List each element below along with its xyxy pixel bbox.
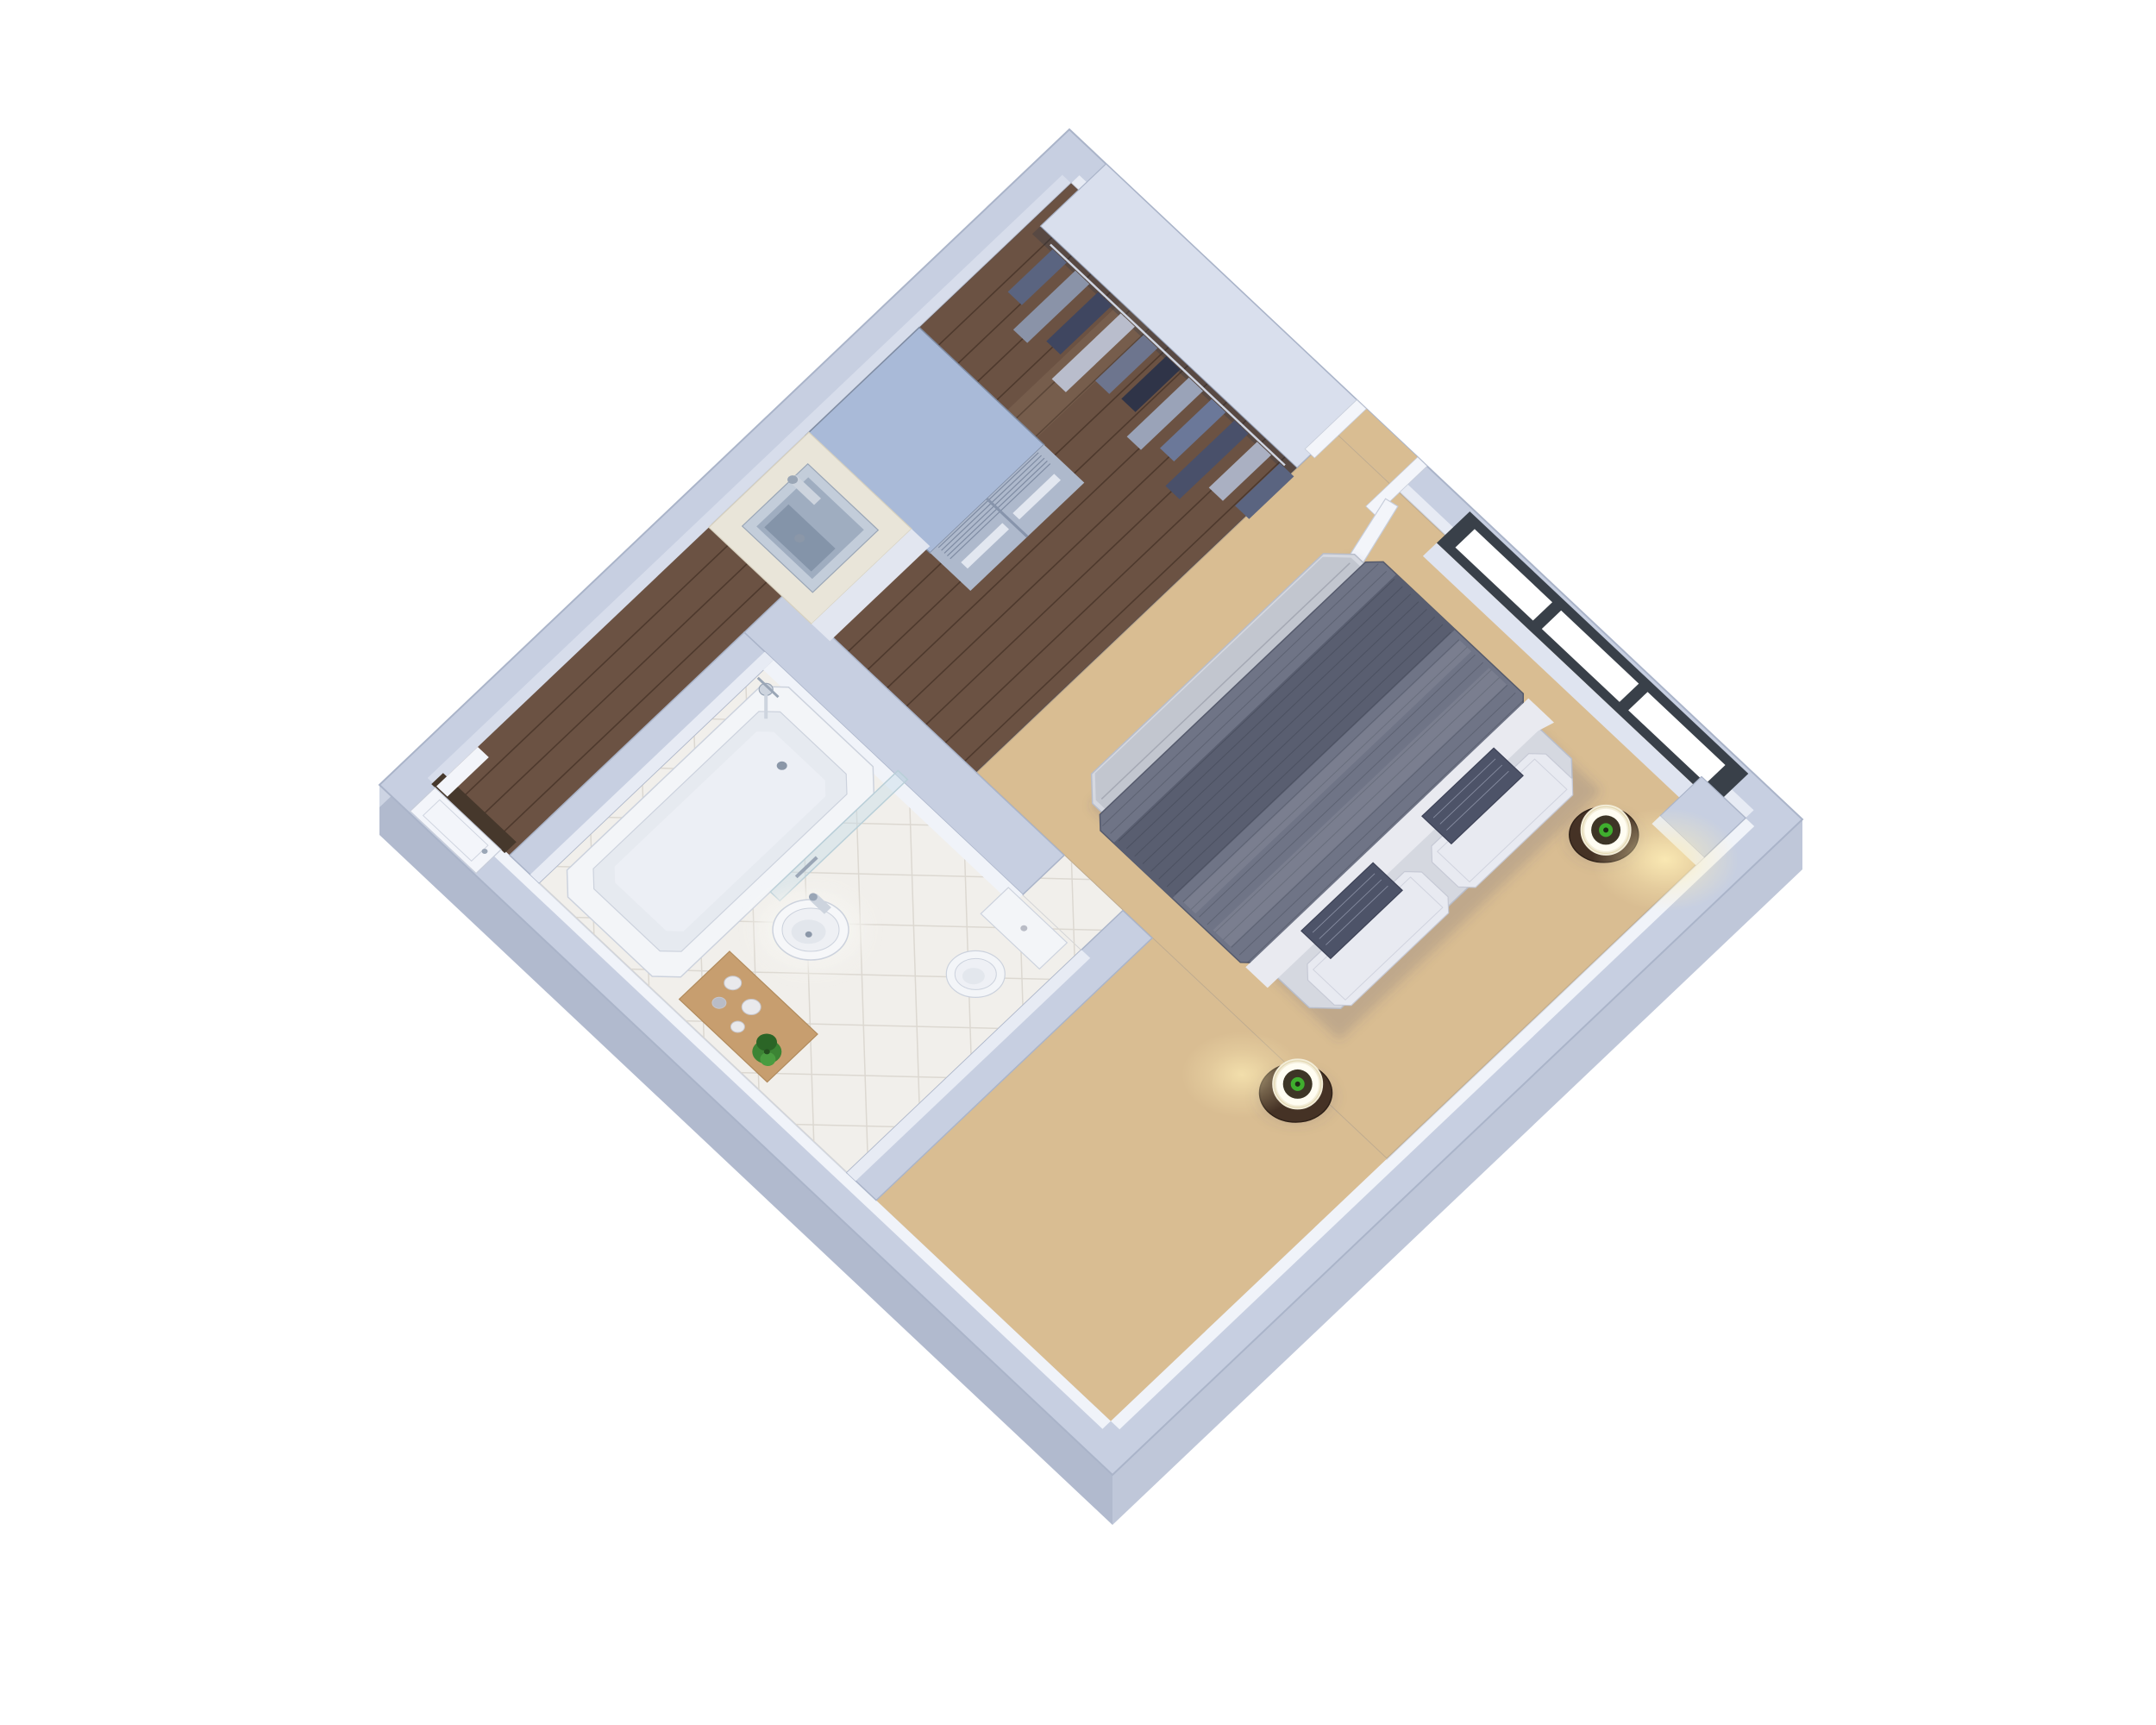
vessel-basin-drain bbox=[805, 931, 812, 938]
kitchen-faucet-base bbox=[787, 475, 798, 484]
basin-faucet-base bbox=[809, 893, 818, 900]
potted-plant-foliage-dark bbox=[756, 1034, 777, 1051]
toiletry-jar-3 bbox=[742, 1000, 761, 1015]
potted-plant-foliage-light bbox=[760, 1052, 775, 1066]
potted-plant-core bbox=[764, 1049, 770, 1054]
toiletry-jar-1 bbox=[724, 976, 742, 990]
floor-plan-render bbox=[0, 0, 2156, 1725]
toilet-seat-hole bbox=[962, 968, 985, 984]
floor-plan-stage bbox=[0, 0, 2156, 1725]
toilet-flush-button bbox=[1020, 925, 1027, 931]
toiletry-jar-2 bbox=[712, 997, 726, 1008]
bathtub-drain bbox=[777, 762, 787, 770]
toiletry-jar-4 bbox=[730, 1021, 744, 1032]
lamp-northeast-finial bbox=[1603, 827, 1608, 832]
lamp-southwest-finial bbox=[1295, 1082, 1300, 1087]
kitchen-sink-drain bbox=[794, 534, 805, 543]
entry-door-handle bbox=[482, 849, 488, 854]
